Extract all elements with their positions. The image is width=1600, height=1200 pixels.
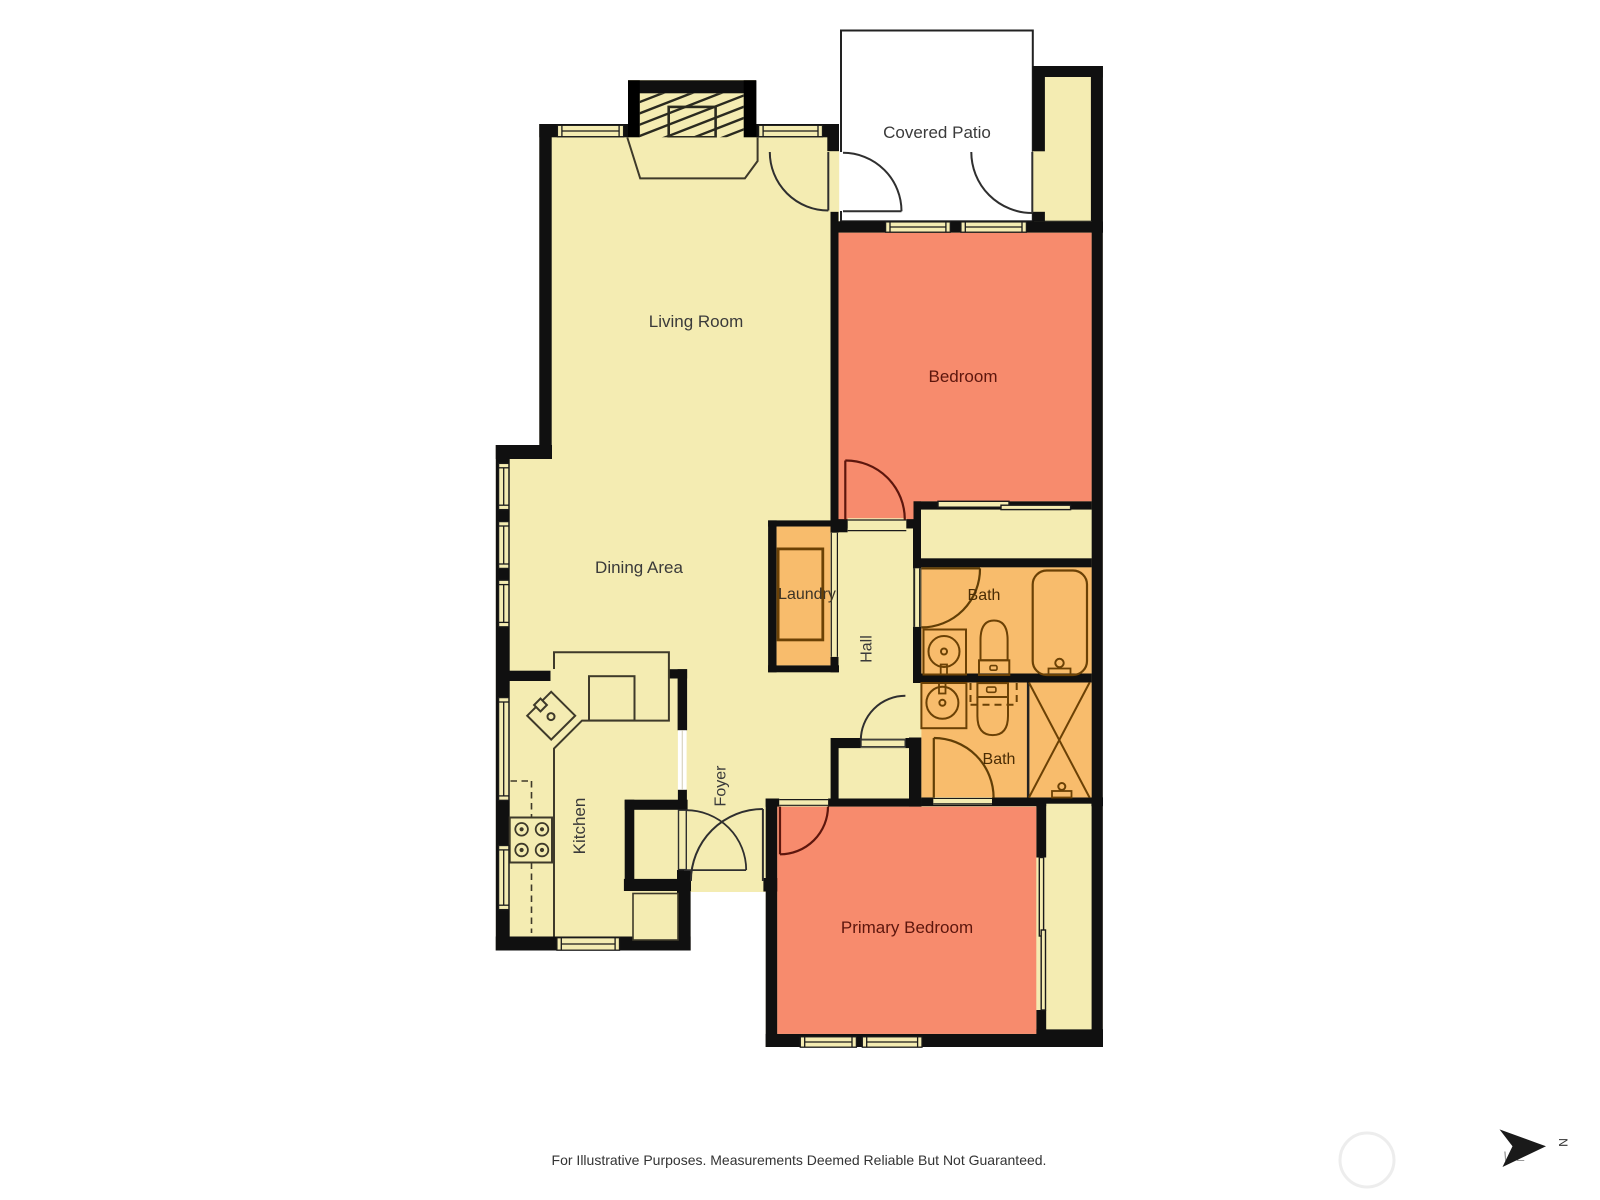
svg-text:Covered Patio: Covered Patio [883, 123, 991, 142]
svg-text:Living Room: Living Room [649, 312, 744, 331]
svg-text:Bath: Bath [983, 751, 1016, 768]
svg-text:Primary Bedroom: Primary Bedroom [841, 918, 973, 937]
svg-text:For Illustrative Purposes. Mea: For Illustrative Purposes. Measurements … [552, 1152, 1047, 1168]
svg-text:Kitchen: Kitchen [570, 798, 589, 855]
svg-text:Bedroom: Bedroom [929, 367, 998, 386]
svg-text:N: N [1556, 1138, 1570, 1147]
svg-text:Laundry: Laundry [778, 586, 836, 603]
svg-text:Bath: Bath [968, 587, 1001, 604]
svg-text:Dining Area: Dining Area [595, 558, 683, 577]
svg-text:Hall: Hall [859, 635, 876, 663]
svg-text:Foyer: Foyer [713, 765, 730, 807]
